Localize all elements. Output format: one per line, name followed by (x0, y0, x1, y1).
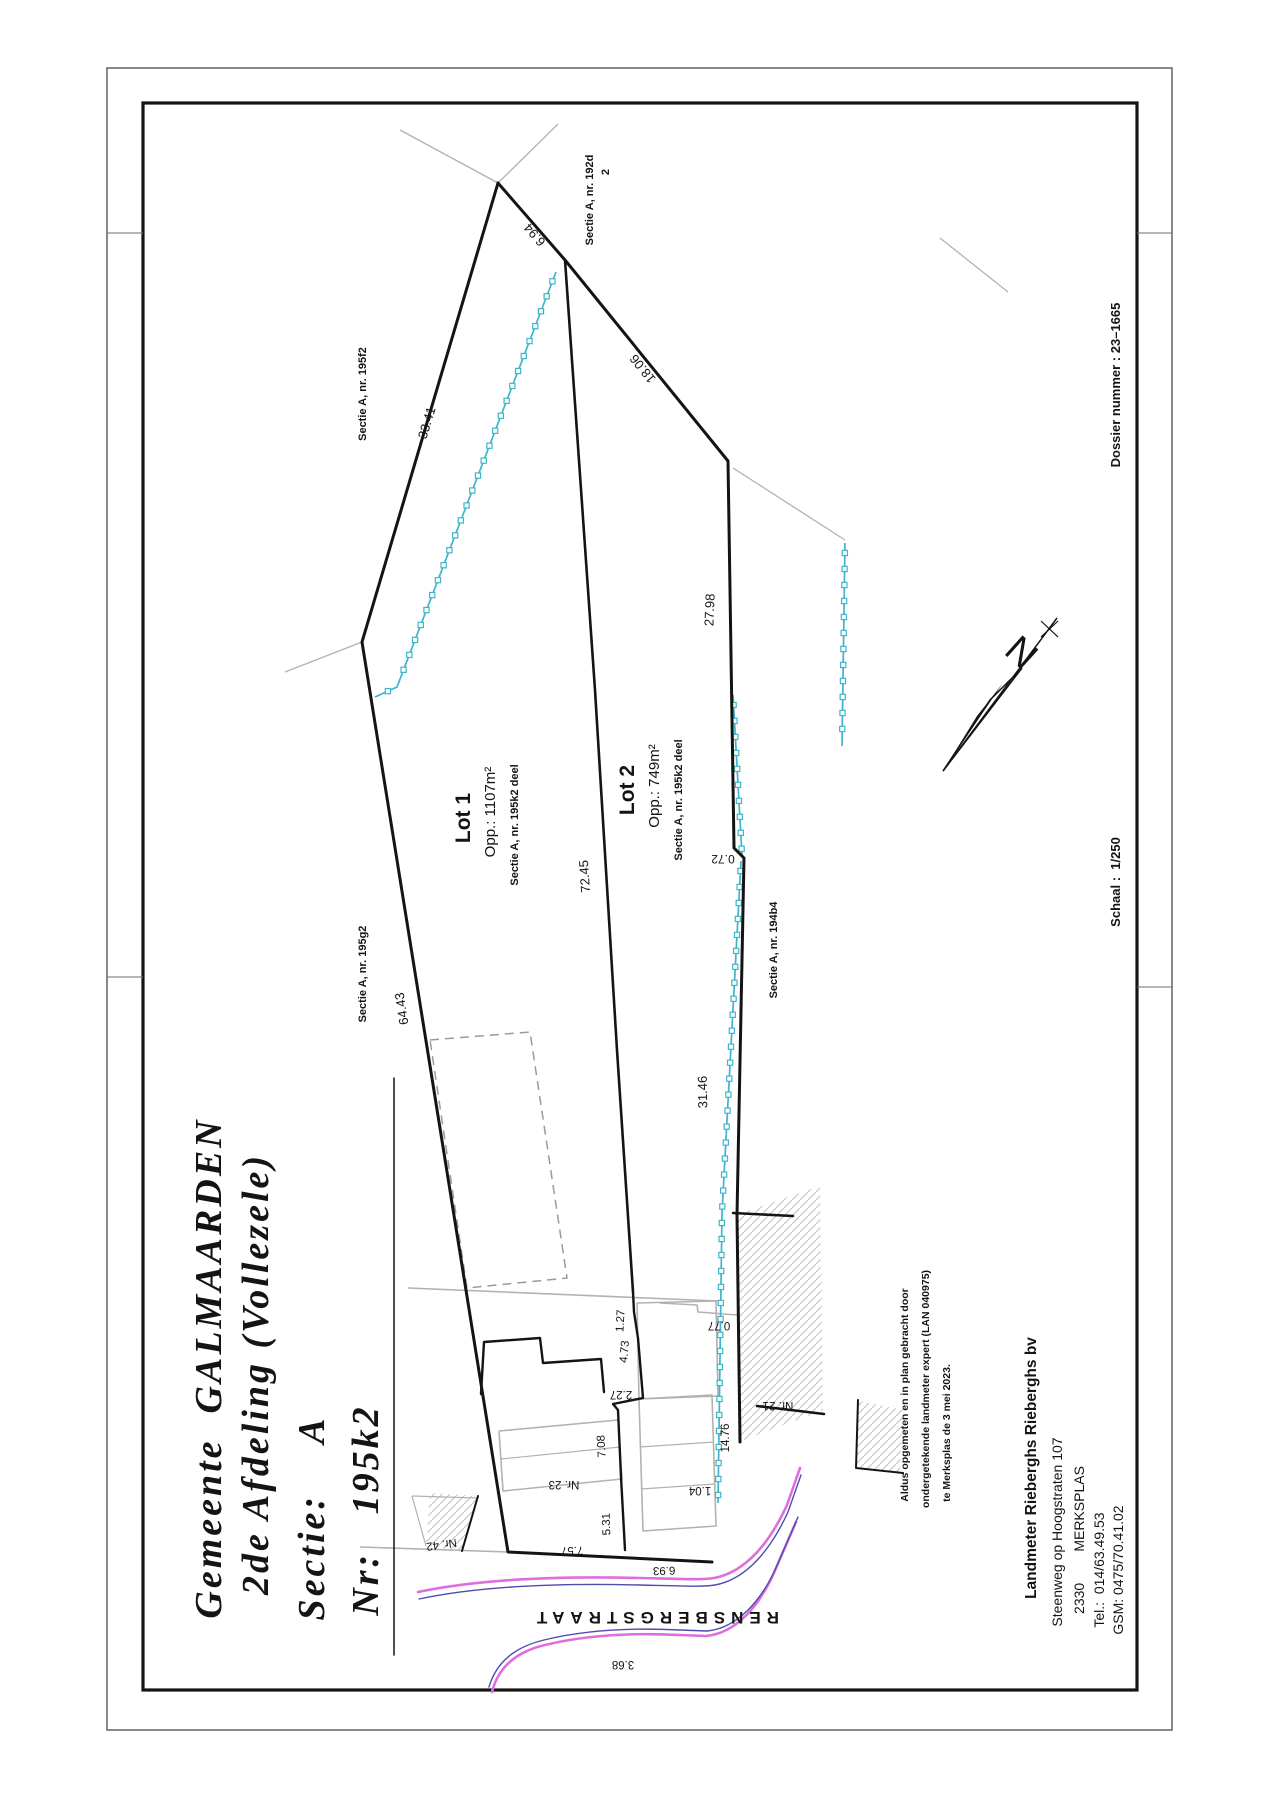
plan_labels-label-27-98: 27.98 (701, 593, 717, 626)
fence-post-marker (718, 1284, 723, 1289)
fence-post-marker (726, 1092, 731, 1097)
fence-line (375, 272, 556, 697)
company-label-landmeter-rieberghs-rieberghs-bv: Landmeter Rieberghs Rieberghs bv (1023, 1337, 1040, 1599)
fence-post-marker (716, 1492, 721, 1497)
fence-post-marker (550, 279, 555, 284)
statement-label-te-merksplas-de-3-mei-2023: te Merksplas de 3 mei 2023. (941, 1364, 953, 1502)
fence-post-marker (728, 1060, 733, 1065)
plan_labels-label-nr-21: Nr. 21 (763, 1399, 794, 1411)
existing-line (639, 1395, 716, 1531)
fence-post-marker (735, 916, 740, 921)
fence-post-marker (731, 996, 736, 1001)
plan_labels-label-33-41: 33.41 (415, 405, 439, 441)
fence-post-marker (841, 614, 846, 619)
plan_labels-label-sectie-a-nr-195g2: Sectie A, nr. 195g2 (357, 926, 369, 1023)
company-label-2330-merksplas: 2330 MERKSPLAS (1071, 1466, 1087, 1614)
company-label-tel-014-63-49-53: Tel.: 014/63.49.53 (1091, 1512, 1107, 1627)
fence-post-marker (735, 782, 740, 787)
hatched-building (856, 1401, 903, 1472)
fence-post-marker (841, 646, 846, 651)
fence-post-marker (730, 1012, 735, 1017)
plan_labels-label-sectie-a-nr-195k2-deel: Sectie A, nr. 195k2 deel (509, 764, 521, 885)
margin-label-dossier-nummer-23-1665: Dossier nummer : 23–1665 (1108, 303, 1123, 468)
fence-post-marker (717, 1396, 722, 1401)
fence-post-marker (840, 710, 845, 715)
fence-post-marker (544, 294, 549, 299)
fence-post-marker (734, 932, 739, 937)
plan_labels-label-7-08: 7.08 (595, 1435, 608, 1458)
title-label-gemeente-galmaarden: Gemeente GALMAARDEN (188, 1117, 230, 1618)
fence-post-marker (840, 678, 845, 683)
fence-post-marker (464, 503, 469, 508)
fence-post-marker (842, 550, 847, 555)
plan_labels-label-6-94: 6.94 (521, 220, 549, 249)
fence-post-marker (470, 488, 475, 493)
plan_labels-label-rensbergstraat: RENSBERGSTRAAT (531, 1608, 779, 1627)
fence-post-marker (717, 1348, 722, 1353)
fence-post-marker (734, 948, 739, 953)
parcel-boundaries (362, 183, 903, 1655)
plan_labels-label-0-72: 0.72 (711, 852, 735, 866)
plan_labels-label-opp-1107m: Opp.: 1107m² (482, 767, 499, 858)
fence-post-marker (487, 443, 492, 448)
fence-post-marker (737, 884, 742, 889)
fence-post-marker (728, 1044, 733, 1049)
fence-post-marker (735, 766, 740, 771)
fence-post-marker (717, 1412, 722, 1417)
fence-post-marker (407, 652, 412, 657)
north-arrow-head-outline (943, 668, 1022, 771)
fence-post-marker (401, 667, 406, 672)
margin-texts: Dossier nummer : 23–1665Schaal : 1/250 (1108, 303, 1123, 927)
plan_labels-label-7-57: 7.57 (561, 1544, 584, 1557)
fence-post-marker (736, 798, 741, 803)
fence-post-marker (721, 1188, 726, 1193)
fence-post-marker (435, 578, 440, 583)
statement-label-ondergetekende-landmeter-expert-lan-040975: ondergetekende landmeter expert (LAN 040… (920, 1270, 932, 1508)
plan_labels-label-4-73: 4.73 (618, 1340, 632, 1363)
existing-line (400, 124, 558, 183)
fence-post-marker (717, 1380, 722, 1385)
fence-post-marker (441, 563, 446, 568)
survey-plan-sheet: NGemeente GALMAARDEN2de Afdeling (Vollez… (0, 0, 1280, 1809)
plan_labels-label-6-93: 6.93 (653, 1564, 676, 1577)
fence-post-marker (842, 566, 847, 571)
fence-post-marker (739, 846, 744, 851)
fence-post-marker (841, 662, 846, 667)
existing-line (637, 1301, 718, 1399)
fence-post-marker (430, 592, 435, 597)
plan_labels-label-1-04: 1.04 (688, 1484, 711, 1496)
fence-post-marker (729, 1028, 734, 1033)
plan_labels-label-72-45: 72.45 (576, 860, 593, 894)
survey-plan-canvas: NGemeente GALMAARDEN2de Afdeling (Vollez… (0, 0, 1280, 1809)
margin-label-schaal-1-250: Schaal : 1/250 (1108, 837, 1123, 927)
fence-post-marker (527, 339, 532, 344)
north-letter: N (997, 628, 1046, 678)
fence-post-marker (727, 1076, 732, 1081)
fence-post-marker (724, 1124, 729, 1129)
fence-post-marker (734, 750, 739, 755)
dashed-outline (430, 1032, 567, 1288)
plan_labels-label-31-46: 31.46 (695, 1076, 711, 1109)
fence-post-marker (719, 1252, 724, 1257)
existing-line (640, 1442, 714, 1447)
fence-post-marker (498, 413, 503, 418)
street-edge-blue (419, 1475, 801, 1599)
fence-post-marker (716, 1476, 721, 1481)
fence-post-marker (841, 630, 846, 635)
boundary-line (362, 183, 712, 1562)
north-arrow: N (943, 618, 1058, 771)
statement-texts: Aldus opgemeten en in plan gebracht door… (899, 1270, 953, 1508)
plan_labels-label-0-77: 0.77 (708, 1319, 730, 1331)
fence-post-marker (538, 309, 543, 314)
fence-post-marker (723, 1140, 728, 1145)
plan_labels-label-nr-23: Nr. 23 (549, 1478, 580, 1490)
fence-post-marker (738, 830, 743, 835)
existing-line (408, 1288, 718, 1301)
dashed-building-outline (430, 1032, 567, 1288)
title-label-2de-afdeling-vollezele: 2de Afdeling (Vollezele) (235, 1153, 277, 1596)
fence-post-marker (475, 473, 480, 478)
fence-post-marker (722, 1156, 727, 1161)
fence-post-marker (719, 1268, 724, 1273)
title-texts: Gemeente GALMAARDEN2de Afdeling (Volleze… (188, 1117, 387, 1620)
existing-line (940, 238, 1008, 292)
fence-post-marker (458, 518, 463, 523)
fence-post-marker (385, 689, 390, 694)
fence-post-marker (447, 548, 452, 553)
plan_labels-label-3-68: 3.68 (612, 1658, 634, 1670)
fence-post-marker (533, 324, 538, 329)
fence-post-marker (725, 1108, 730, 1113)
existing-line (412, 1496, 426, 1546)
plan_labels-label-sectie-a-nr-195k2-deel: Sectie A, nr. 195k2 deel (673, 739, 685, 860)
fence-post-marker (504, 398, 509, 403)
company-label-steenweg-op-hoogstraten-107: Steenweg op Hoogstraten 107 (1049, 1437, 1065, 1626)
plan_labels-label-5-31: 5.31 (601, 1513, 614, 1536)
title-label-nr-195k2: Nr: 195k2 (345, 1404, 387, 1616)
fence-post-marker (717, 1364, 722, 1369)
fence-post-marker (842, 598, 847, 603)
company-texts: Landmeter Rieberghs Rieberghs bvSteenweg… (1023, 1337, 1126, 1635)
plan_labels-texts: 6.9418.0633.4127.980.7264.4372.4531.461.… (357, 155, 793, 1670)
fence-post-marker (719, 1236, 724, 1241)
plan_labels-label-sectie-a-nr-192d: Sectie A, nr. 192d (584, 155, 596, 246)
statement-label-aldus-opgemeten-en-in-plan-gebracht-door: Aldus opgemeten en in plan gebracht door (899, 1288, 911, 1502)
fence-post-marker (732, 980, 737, 985)
plan_labels-label-2-27: 2.27 (610, 1388, 632, 1400)
existing-line (733, 468, 845, 540)
fence-post-marker (412, 637, 417, 642)
plan_labels-label-opp-749m: Opp.: 749m² (646, 744, 663, 827)
title-label-sectie-a: Sectie: A (291, 1416, 333, 1621)
fence-post-marker (424, 607, 429, 612)
fence-post-marker (481, 458, 486, 463)
plan_labels-label-2: 2 (600, 169, 612, 175)
fence-post-marker (510, 383, 515, 388)
existing-line (660, 1303, 737, 1315)
company-label-gsm-0475-70-41-02: GSM: 0475/70.41.02 (1110, 1505, 1126, 1634)
plan_labels-label-sectie-a-nr-194b4: Sectie A, nr. 194b4 (768, 901, 780, 999)
fence-post-marker (418, 622, 423, 627)
boundary-line (481, 1338, 604, 1394)
street-edge-blue (489, 1517, 798, 1687)
fence-post-marker (718, 1300, 723, 1305)
fence-post-marker (716, 1460, 721, 1465)
fence-post-marker (718, 1332, 723, 1337)
fence-post-marker (840, 726, 845, 731)
fence-post-marker (521, 353, 526, 358)
fence-post-marker (736, 900, 741, 905)
plan_labels-label-64-43: 64.43 (392, 991, 412, 1025)
fence-post-marker (840, 694, 845, 699)
plan_labels-label-lot-1: Lot 1 (452, 793, 475, 843)
north-arrow-tip-cross (1041, 621, 1058, 637)
fence-post-marker (737, 814, 742, 819)
fence-post-marker (493, 428, 498, 433)
plan_labels-label-1-27: 1.27 (614, 1309, 627, 1332)
fence-post-marker (515, 368, 520, 373)
fence-post-marker (842, 582, 847, 587)
plan_labels-label-sectie-a-nr-195f2: Sectie A, nr. 195f2 (357, 347, 369, 441)
plan_labels-label-14-76: 14.76 (720, 1424, 732, 1453)
fence-post-marker (720, 1204, 725, 1209)
fence-post-marker (719, 1220, 724, 1225)
fence-post-marker (733, 964, 738, 969)
fence-post-marker (453, 533, 458, 538)
fence-post-marker (721, 1172, 726, 1177)
existing-line (285, 642, 362, 672)
plan_labels-label-lot-2: Lot 2 (616, 765, 639, 815)
